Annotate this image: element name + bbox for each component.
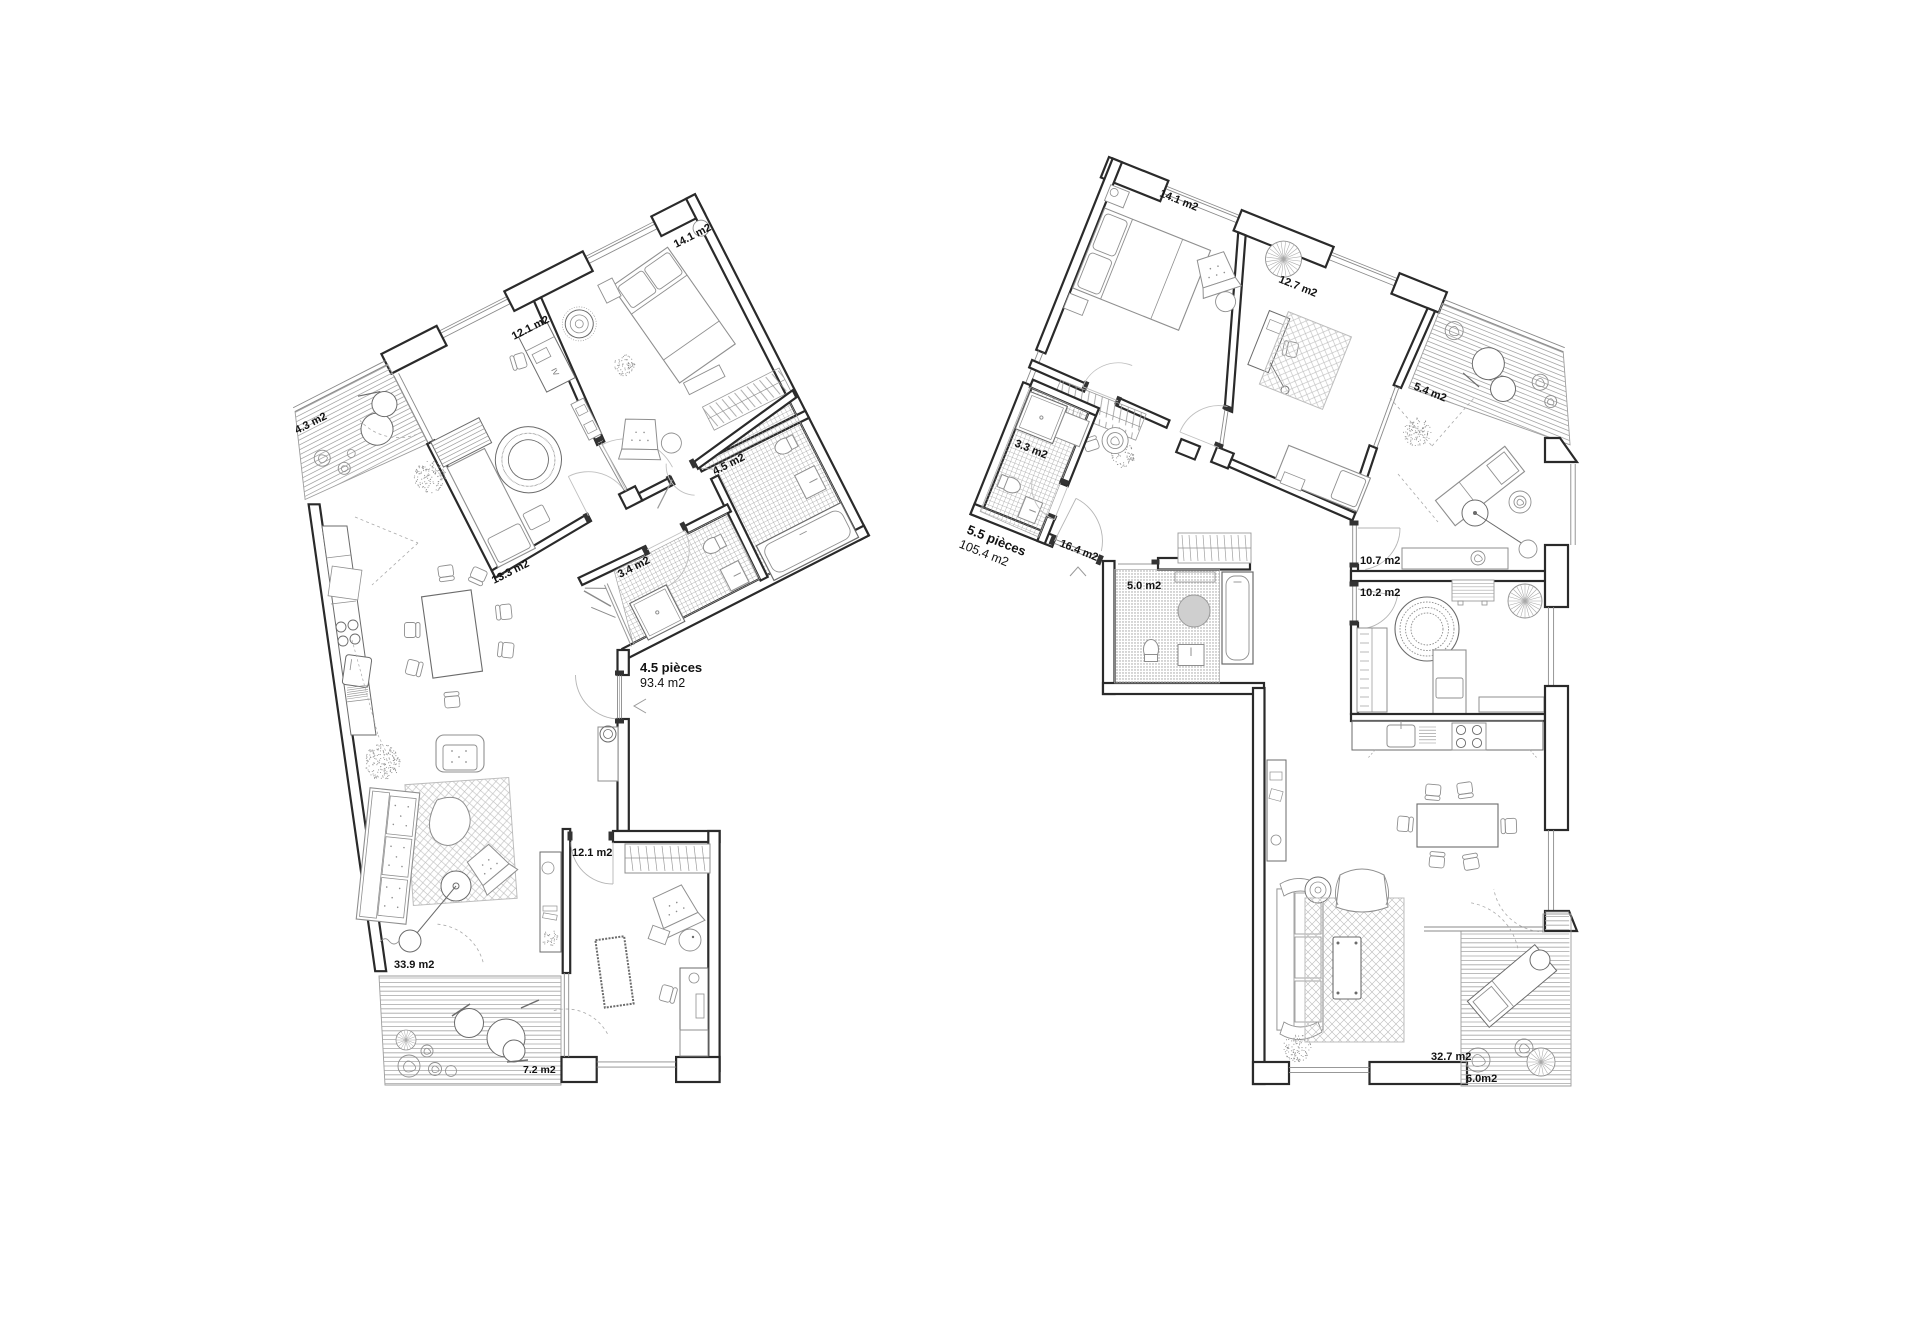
svg-text:93.4 m2: 93.4 m2 xyxy=(640,676,685,690)
svg-text:5.0 m2: 5.0 m2 xyxy=(1127,580,1161,592)
svg-text:4.5 pièces: 4.5 pièces xyxy=(640,660,702,675)
svg-text:10.7 m2: 10.7 m2 xyxy=(1360,555,1400,567)
svg-text:6.0m2: 6.0m2 xyxy=(1466,1073,1497,1085)
svg-text:33.9 m2: 33.9 m2 xyxy=(394,959,434,971)
svg-text:32.7 m2: 32.7 m2 xyxy=(1431,1051,1471,1063)
svg-text:10.2 m2: 10.2 m2 xyxy=(1360,587,1400,599)
svg-text:12.1 m2: 12.1 m2 xyxy=(572,847,612,859)
svg-text:7.2 m2: 7.2 m2 xyxy=(523,1064,556,1076)
